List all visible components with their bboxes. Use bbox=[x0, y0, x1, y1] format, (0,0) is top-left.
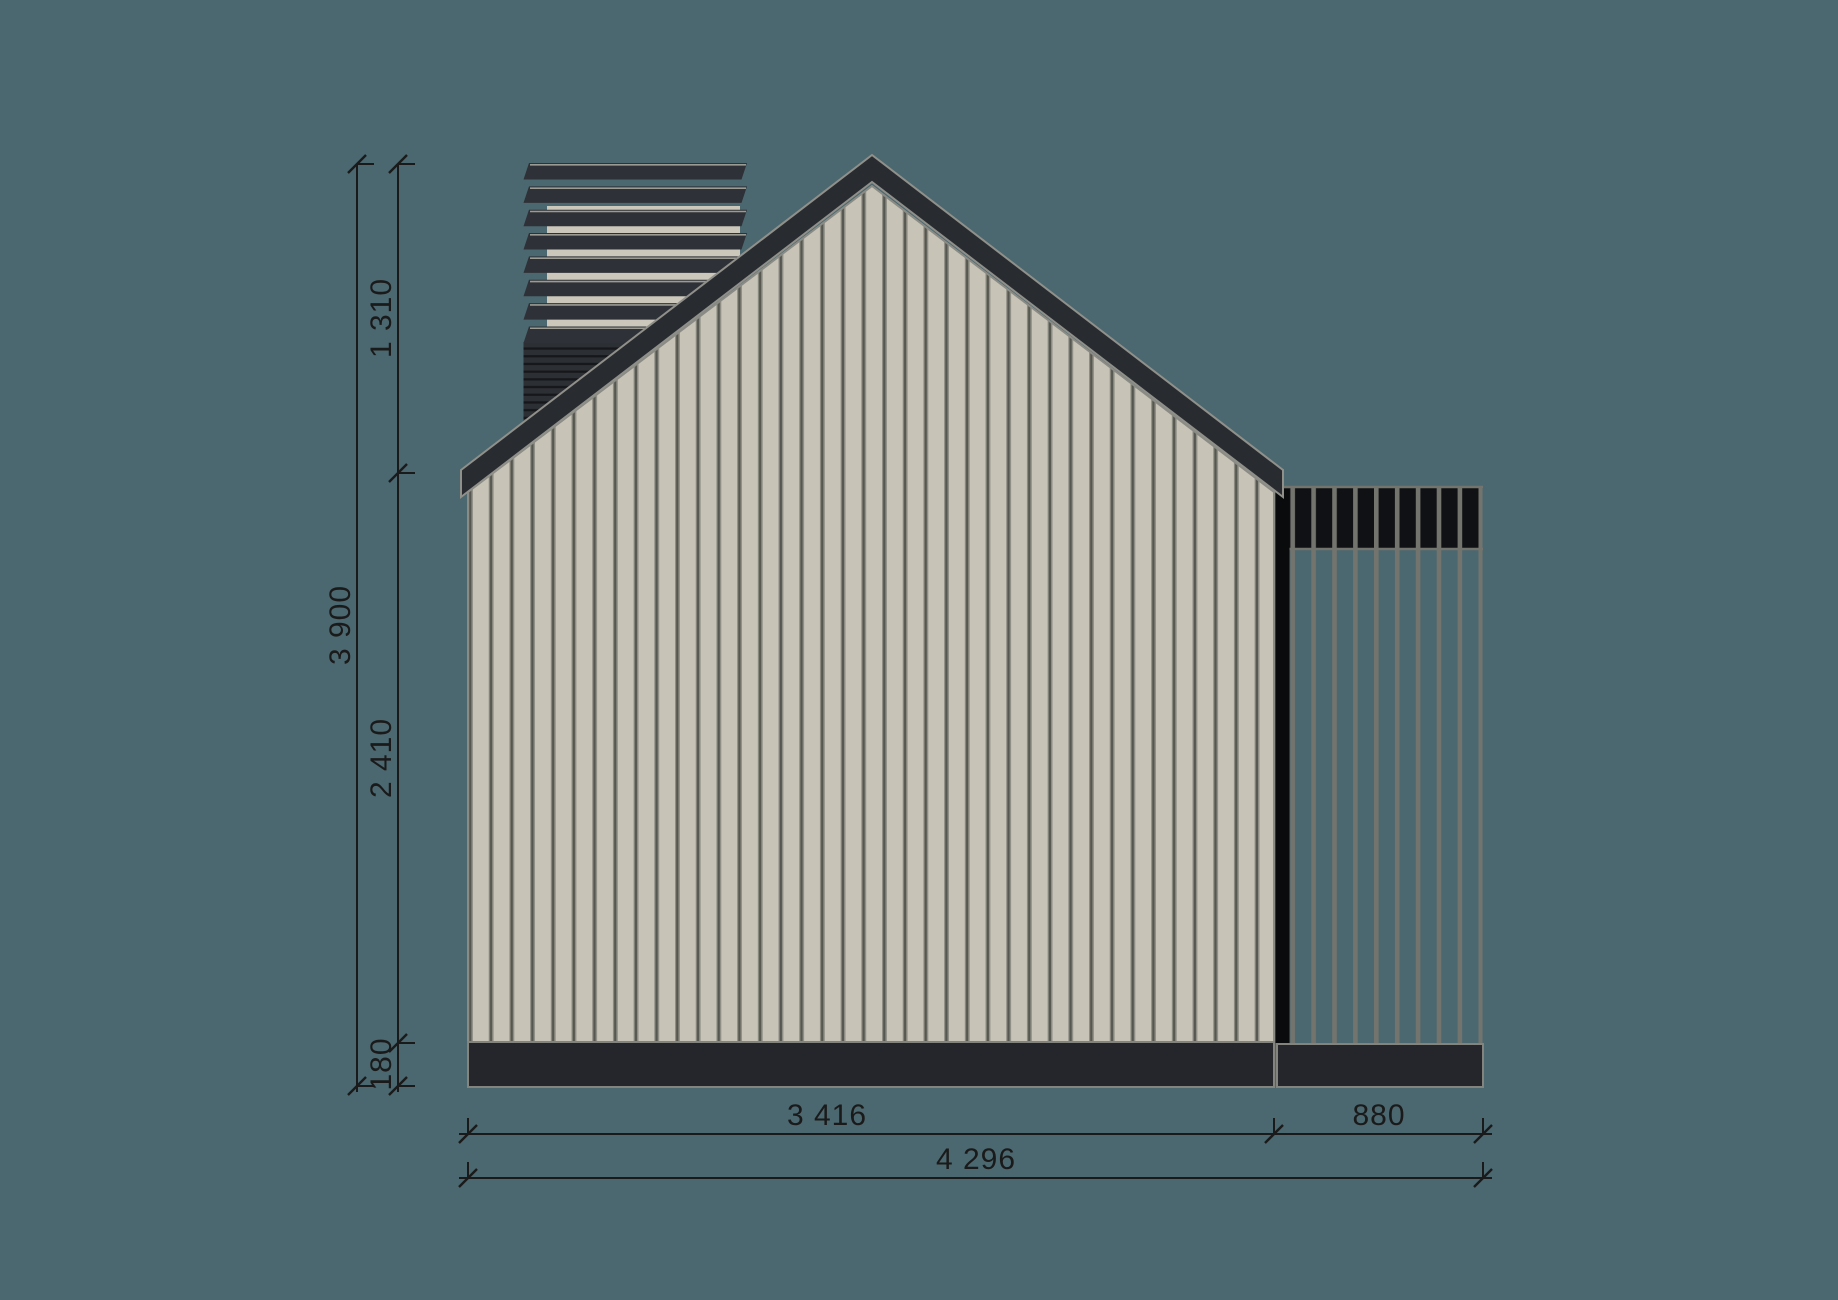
chimney-slat bbox=[524, 233, 748, 250]
pergola-posts bbox=[1290, 549, 1481, 1045]
chimney-slat bbox=[524, 256, 748, 273]
terrace-plinth bbox=[1277, 1044, 1483, 1087]
wall-plinth bbox=[468, 1042, 1274, 1087]
chimney-slat bbox=[524, 163, 748, 180]
elevation-canvas: 3 900 1 310 2 410 180 3 416 880 4 296 bbox=[0, 0, 1838, 1300]
dim-label-plinth-height: 180 bbox=[365, 1037, 398, 1090]
dim-label-total-height: 3 900 bbox=[324, 585, 357, 665]
dim-label-house-width: 3 416 bbox=[787, 1099, 867, 1132]
pergola-beam-mullions bbox=[1290, 487, 1481, 549]
dim-label-pergola-width: 880 bbox=[1352, 1099, 1405, 1132]
corner-shadow-strip bbox=[1276, 489, 1290, 1043]
chimney-slat bbox=[524, 210, 748, 227]
chimney-slat bbox=[524, 186, 748, 203]
dim-label-wall-height: 2 410 bbox=[365, 718, 398, 798]
pergola bbox=[1276, 487, 1484, 1045]
dim-label-roof-height: 1 310 bbox=[365, 278, 398, 358]
elevation-drawing: 3 900 1 310 2 410 180 3 416 880 4 296 bbox=[0, 0, 1838, 1300]
dim-label-total-width: 4 296 bbox=[936, 1143, 1016, 1176]
